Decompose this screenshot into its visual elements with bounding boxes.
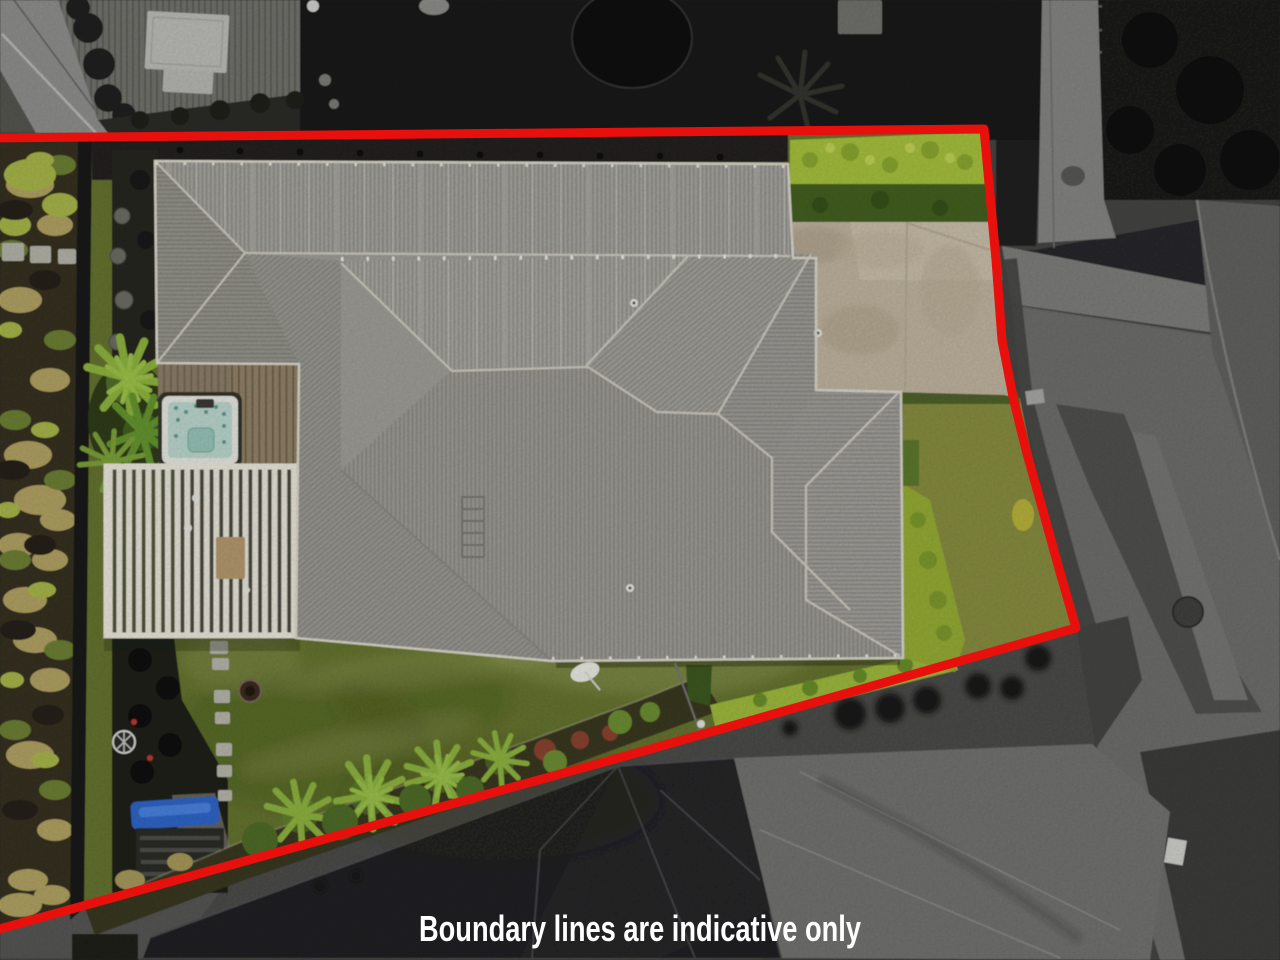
svg-text:Boundary lines are indicative: Boundary lines are indicative only [419,908,861,949]
